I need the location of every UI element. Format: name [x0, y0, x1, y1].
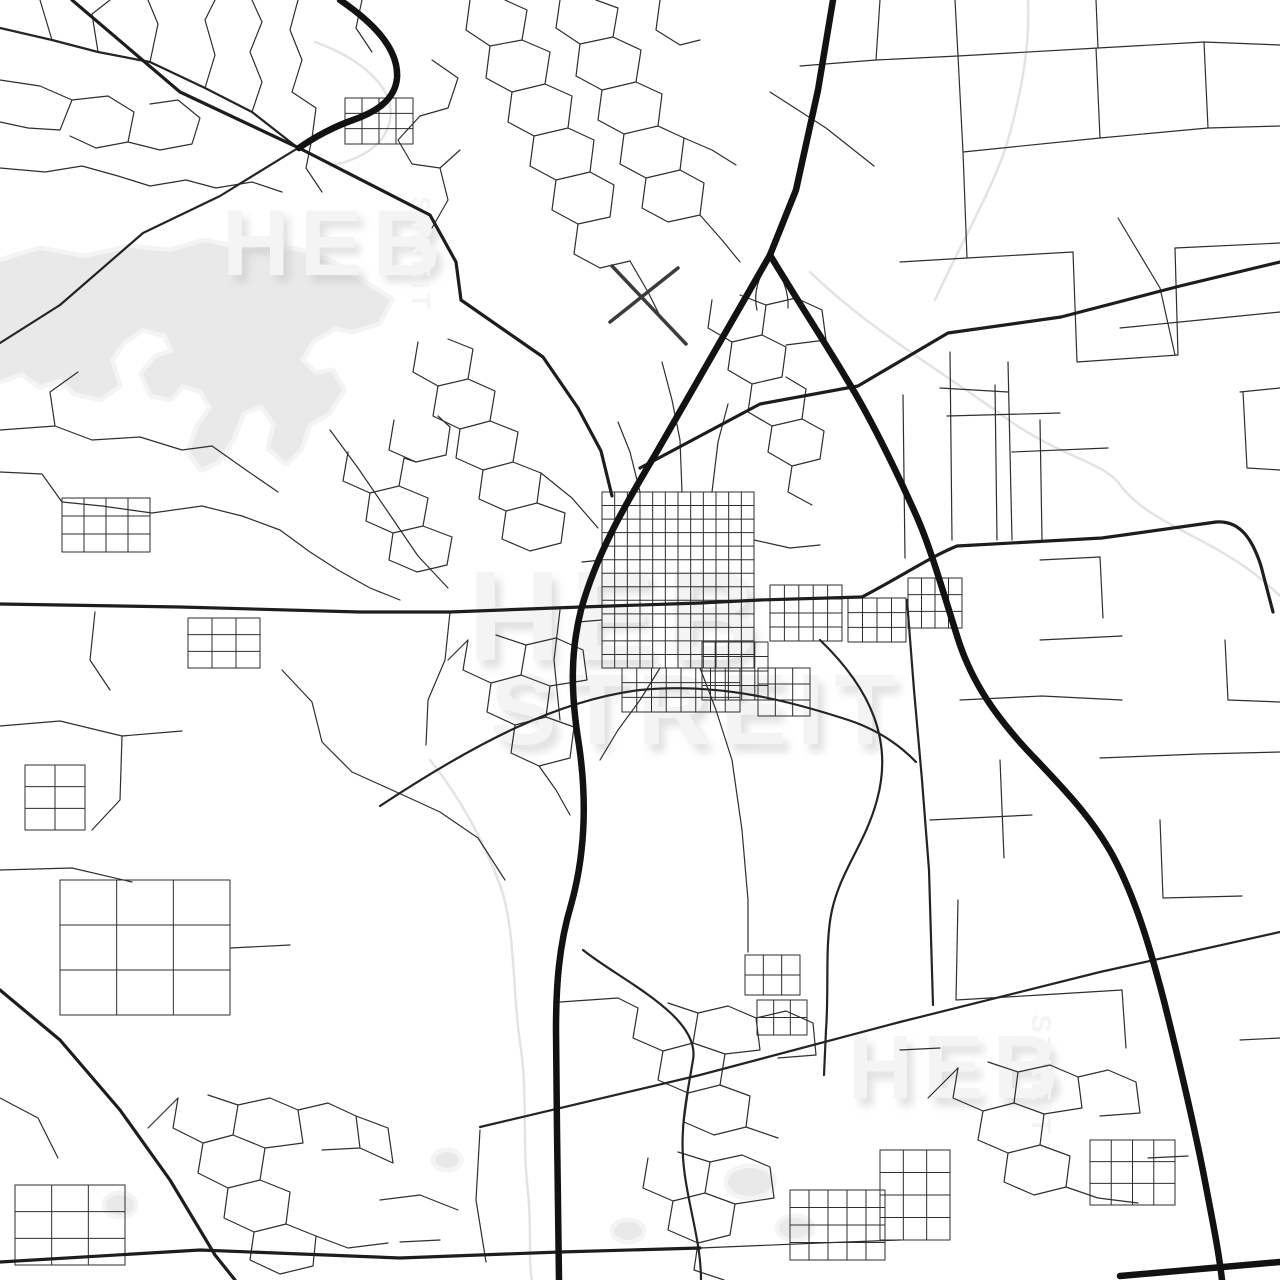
runways-layer [610, 266, 686, 344]
watermark-brand-topleft-vertical: STREIT [406, 196, 436, 312]
watermark-brand-bottomright-vertical: STREIT [1026, 1014, 1057, 1138]
map-canvas: HEB HEB STREIT STREIT HEB HEB STREIT HEB… [0, 0, 1280, 1280]
watermark-brand-center-2: STREIT [490, 654, 906, 766]
map-image: HEB HEB STREIT STREIT HEB HEB STREIT HEB… [0, 0, 1280, 1280]
road-layers [0, 0, 1280, 1280]
